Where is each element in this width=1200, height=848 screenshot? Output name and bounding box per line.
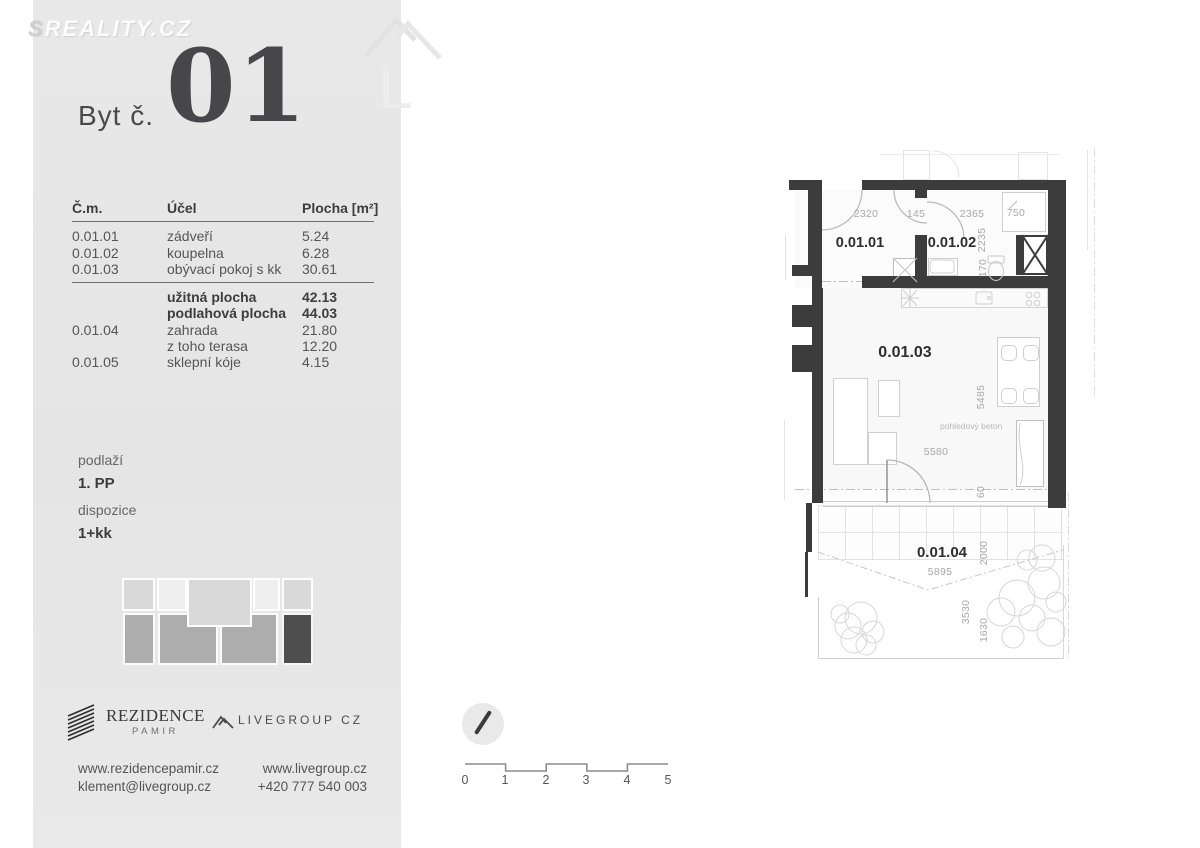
layout-value: 1+kk	[78, 525, 112, 542]
table-divider	[72, 282, 374, 283]
floor-plan: 0.01.01 0.01.02 0.01.03 0.01.04 2320 145…	[770, 140, 1100, 680]
cell-area: 12.20	[302, 338, 374, 354]
dimension-label: 3530	[960, 592, 972, 632]
scale-tick-label: 4	[615, 773, 639, 787]
plan-lineart	[770, 140, 1100, 680]
dimension-label: 1630	[978, 610, 990, 650]
cell-purpose: sklepní kóje	[167, 354, 302, 370]
contact-left-column: www.rezidencepamir.cz klement@livegroup.…	[78, 760, 219, 795]
cell-num: 0.01.04	[72, 322, 167, 338]
north-needle-icon	[474, 710, 492, 735]
garden-plants-sketch	[831, 545, 1066, 655]
website-livegroup: www.livegroup.cz	[240, 760, 367, 778]
cell-num: 0.01.03	[72, 261, 167, 277]
unit-title-label: Byt č.	[78, 100, 154, 132]
cell-purpose: z toho terasa	[167, 338, 302, 354]
contact-right-column: www.livegroup.cz +420 777 540 003	[240, 760, 367, 795]
diagram-block	[157, 578, 187, 611]
washer-cross-icon	[893, 258, 917, 282]
rezidence-logo-subtext: PAMIR	[132, 726, 179, 737]
cell-area: 6.28	[302, 245, 374, 261]
concrete-curve	[1019, 423, 1023, 485]
dimension-label: 750	[996, 207, 1036, 219]
scale-tick-label: 2	[534, 773, 558, 787]
cell-area: 30.61	[302, 261, 374, 277]
cell-purpose: koupelna	[167, 245, 302, 261]
cell-purpose: podlahová plocha	[167, 305, 302, 321]
room-area-table: Č.m. Účel Plocha [m²] 0.01.01 zádveří 5.…	[72, 200, 374, 371]
phone-number: +420 777 540 003	[240, 778, 367, 796]
dimension-label: 5485	[975, 377, 987, 417]
table-header-row: Č.m. Účel Plocha [m²]	[72, 200, 374, 216]
floor-label: podlaží	[78, 452, 123, 468]
website-rezidencepamir: www.rezidencepamir.cz	[78, 760, 219, 778]
neighbor-door-arc	[933, 151, 959, 177]
scale-tick-label: 1	[493, 773, 517, 787]
sink-basin-icon	[930, 260, 954, 273]
table-row: 0.01.05 sklepní kóje 4.15	[72, 354, 374, 370]
cell-purpose: zádveří	[167, 228, 302, 244]
table-row: z toho terasa 12.20	[72, 338, 374, 354]
table-row: 0.01.02 koupelna 6.28	[72, 245, 374, 261]
north-marker	[462, 703, 504, 745]
room-label-garden: 0.01.04	[904, 544, 980, 561]
toilet-icon	[989, 262, 1004, 281]
table-row: 0.01.04 zahrada 21.80	[72, 322, 374, 338]
dimension-label: 60	[975, 472, 987, 512]
door-arc-terrace	[887, 460, 930, 503]
hob-icon	[901, 288, 919, 308]
col-header-purpose: Účel	[167, 200, 302, 216]
cell-num	[72, 338, 167, 354]
floor-value: 1. PP	[78, 475, 115, 492]
scale-bar	[458, 760, 674, 774]
room-label-entry: 0.01.01	[826, 235, 894, 251]
ghost-letter-watermark: L	[378, 52, 412, 123]
diagram-block	[123, 613, 155, 665]
stove-burners-icon	[1026, 292, 1040, 306]
livegroup-logo-icon	[212, 712, 236, 730]
layout-label: dispozice	[78, 502, 136, 518]
table-divider	[72, 221, 374, 222]
rezidence-pamir-logo-icon	[66, 702, 100, 742]
table-row: 0.01.03 obývací pokoj s kk 30.61	[72, 261, 374, 277]
diagram-block	[253, 578, 280, 611]
email-address: klement@livegroup.cz	[78, 778, 219, 796]
shaft-cross-icon	[1022, 235, 1048, 275]
table-row: 0.01.01 zádveří 5.24	[72, 228, 374, 244]
cell-num	[72, 289, 167, 305]
cell-area: 21.80	[302, 322, 374, 338]
cell-area: 5.24	[302, 228, 374, 244]
room-label-living: 0.01.03	[867, 344, 943, 362]
cell-area: 42.13	[302, 289, 374, 305]
kitchen-sink-icon	[976, 292, 992, 304]
scale-tick-label: 0	[453, 773, 477, 787]
diagram-block-highlighted-unit	[282, 613, 313, 665]
cell-area: 44.03	[302, 305, 374, 321]
dimension-label: 170	[977, 248, 989, 288]
rezidence-logo-text: REZIDENCE	[106, 706, 205, 726]
dimension-label: 5895	[920, 566, 960, 578]
table-row-total: užitná plocha 42.13	[72, 289, 374, 305]
col-header-num: Č.m.	[72, 200, 167, 216]
diagram-block	[122, 578, 155, 611]
dimension-label: 2365	[952, 208, 992, 220]
building-position-diagram	[120, 573, 318, 670]
material-note: pohledový beton	[940, 421, 1010, 431]
cell-area: 4.15	[302, 354, 374, 370]
dimension-label: 2000	[978, 533, 990, 573]
cell-num: 0.01.05	[72, 354, 167, 370]
apartment-factsheet-page: SREALITY.CZ L Byt č. 01 Č.m. Účel Plocha…	[0, 0, 1200, 848]
cell-purpose: obývací pokoj s kk	[167, 261, 302, 277]
diagram-block	[282, 578, 313, 611]
dimension-label: 5580	[916, 446, 956, 458]
cell-num	[72, 305, 167, 321]
scale-tick-label: 5	[656, 773, 680, 787]
cell-purpose: užitná plocha	[167, 289, 302, 305]
table-row-total: podlahová plocha 44.03	[72, 305, 374, 321]
faucet-icon	[988, 297, 991, 300]
cell-num: 0.01.01	[72, 228, 167, 244]
unit-number: 01	[166, 36, 307, 136]
dimension-label: 2320	[846, 208, 886, 220]
scale-tick-label: 3	[574, 773, 598, 787]
col-header-area: Plocha [m²]	[302, 200, 374, 216]
diagram-block	[187, 578, 252, 627]
cell-num: 0.01.02	[72, 245, 167, 261]
livegroup-logo-text: LIVEGROUP CZ	[238, 713, 363, 727]
sreality-watermark-first-letter: S	[28, 16, 45, 41]
cell-purpose: zahrada	[167, 322, 302, 338]
dimension-label: 145	[896, 208, 936, 220]
